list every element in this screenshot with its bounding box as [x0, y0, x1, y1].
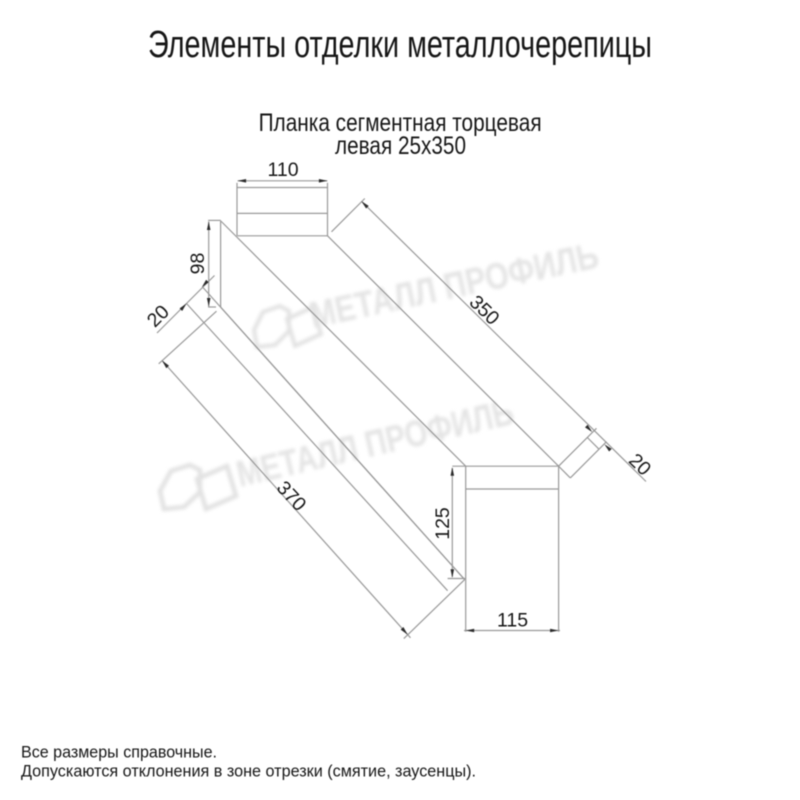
svg-text:125: 125 — [432, 507, 454, 540]
svg-text:левая 25х350: левая 25х350 — [335, 132, 466, 160]
svg-text:115: 115 — [497, 610, 528, 632]
svg-text:110: 110 — [267, 159, 298, 181]
svg-text:МЕТАЛЛ ПРОФИЛЬ: МЕТАЛЛ ПРОФИЛЬ — [306, 235, 602, 336]
svg-text:20: 20 — [143, 301, 174, 332]
svg-text:Допускаются отклонения в зоне: Допускаются отклонения в зоне отрезки (с… — [21, 763, 476, 781]
svg-text:98: 98 — [187, 253, 209, 275]
svg-text:Все размеры справочные.: Все размеры справочные. — [21, 744, 217, 762]
svg-text:20: 20 — [624, 449, 655, 480]
svg-text:Элементы отделки металлочерепи: Элементы отделки металлочерепицы — [148, 24, 652, 66]
